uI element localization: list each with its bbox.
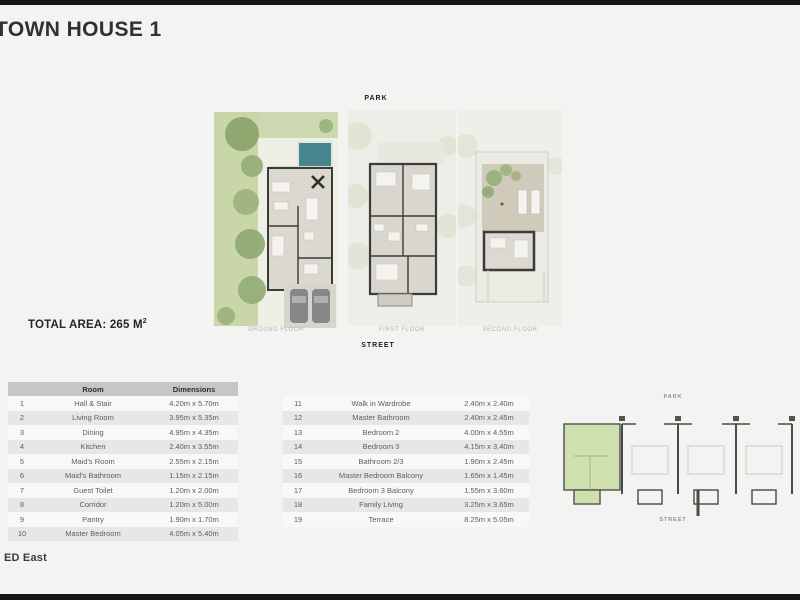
row-dim: 1.20m x 2.00m bbox=[150, 483, 238, 498]
row-dim: 1.20m x 5.00m bbox=[150, 498, 238, 513]
row-room: Maid's Bathroom bbox=[36, 469, 150, 484]
row-room: Master Bedroom bbox=[36, 527, 150, 542]
row-room: Bedroom 2 bbox=[313, 425, 449, 440]
row-num: 9 bbox=[8, 512, 36, 527]
table-row: 1Hall & Stair4.20m x 5.70m bbox=[8, 396, 238, 411]
row-num: 13 bbox=[283, 425, 313, 440]
row-dim: 2.40m x 3.55m bbox=[150, 440, 238, 455]
row-dim: 8.25m x 5.05m bbox=[449, 512, 529, 527]
row-room: Maid's Room bbox=[36, 454, 150, 469]
floor-plan-second: SECOND FLOOR bbox=[458, 106, 562, 338]
row-num: 16 bbox=[283, 469, 313, 484]
row-room: Bedroom 3 bbox=[313, 440, 449, 455]
table-row: 8Corridor1.20m x 5.00m bbox=[8, 498, 238, 513]
row-dim: 1.90m x 1.70m bbox=[150, 512, 238, 527]
floor-plan-caption: FIRST FLOOR bbox=[348, 327, 456, 333]
table-row: 14Bedroom 34.15m x 3.40m bbox=[283, 440, 529, 455]
row-dim: 2.55m x 2.15m bbox=[150, 454, 238, 469]
table-row: 19Terrace8.25m x 5.05m bbox=[283, 512, 529, 527]
second-floor-plan-drawing bbox=[458, 106, 562, 332]
row-num: 7 bbox=[8, 483, 36, 498]
total-area-superscript: 2 bbox=[143, 318, 147, 325]
row-num: 10 bbox=[8, 527, 36, 542]
row-dim: 3.25m x 3.65m bbox=[449, 498, 529, 513]
table-row: 7Guest Toilet1.20m x 2.00m bbox=[8, 483, 238, 498]
top-border-bar bbox=[0, 0, 800, 5]
floor-plan-ground: GROUND FLOOR bbox=[212, 106, 340, 338]
row-dim: 3.95m x 5.35m bbox=[150, 411, 238, 426]
row-num: 3 bbox=[8, 425, 36, 440]
total-area-label: TOTAL AREA: 265 M2 bbox=[28, 318, 147, 331]
row-dim: 1.65m x 1.45m bbox=[449, 469, 529, 484]
bottom-border-bar bbox=[0, 594, 800, 600]
room-table-left: Room Dimensions 1Hall & Stair4.20m x 5.7… bbox=[8, 382, 238, 541]
row-dim: 4.00m x 4.55m bbox=[449, 425, 529, 440]
table-row: 9Pantry1.90m x 1.70m bbox=[8, 512, 238, 527]
header-num bbox=[8, 382, 36, 396]
row-room: Dining bbox=[36, 425, 150, 440]
row-room: Hall & Stair bbox=[36, 396, 150, 411]
row-room: Bathroom 2/3 bbox=[313, 454, 449, 469]
table-row: 13Bedroom 24.00m x 4.55m bbox=[283, 425, 529, 440]
floor-plan-caption: GROUND FLOOR bbox=[212, 327, 340, 333]
footer-text: ED East bbox=[4, 552, 47, 564]
site-plan: PARK bbox=[560, 386, 800, 540]
page-title: TOWN HOUSE 1 bbox=[0, 18, 162, 42]
neighbour-units bbox=[622, 424, 792, 516]
table-row: 15Bathroom 2/31.90m x 2.45m bbox=[283, 454, 529, 469]
row-room: Walk in Wardrobe bbox=[313, 396, 449, 411]
first-floor-plan-drawing bbox=[348, 106, 456, 332]
row-num: 1 bbox=[8, 396, 36, 411]
plans-street-label: STREET bbox=[340, 342, 416, 349]
header-dimensions: Dimensions bbox=[150, 382, 238, 396]
site-plan-street-label: STREET bbox=[560, 517, 786, 523]
table-row: 2Living Room3.95m x 5.35m bbox=[8, 411, 238, 426]
row-room: Living Room bbox=[36, 411, 150, 426]
row-num: 12 bbox=[283, 411, 313, 426]
table-header-row: Room Dimensions bbox=[8, 382, 238, 396]
table-row: 11Walk in Wardrobe2.40m x 2.40m bbox=[283, 396, 529, 411]
row-dim: 4.15m x 3.40m bbox=[449, 440, 529, 455]
row-num: 17 bbox=[283, 483, 313, 498]
row-room: Bedroom 3 Balcony bbox=[313, 483, 449, 498]
table-row: 10Master Bedroom4.05m x 5.40m bbox=[8, 527, 238, 542]
floor-plan-first: FIRST FLOOR bbox=[348, 106, 456, 338]
table-row: 17Bedroom 3 Balcony1.55m x 3.60m bbox=[283, 483, 529, 498]
table-row: 18Family Living3.25m x 3.65m bbox=[283, 498, 529, 513]
row-num: 2 bbox=[8, 411, 36, 426]
row-dim: 1.55m x 3.60m bbox=[449, 483, 529, 498]
row-dim: 4.05m x 5.40m bbox=[150, 527, 238, 542]
row-num: 8 bbox=[8, 498, 36, 513]
table-row: 6Maid's Bathroom1.15m x 2.15m bbox=[8, 469, 238, 484]
row-room: Corridor bbox=[36, 498, 150, 513]
table-row: 16Master Bedroom Balcony1.65m x 1.45m bbox=[283, 469, 529, 484]
row-room: Master Bathroom bbox=[313, 411, 449, 426]
row-dim: 1.90m x 2.45m bbox=[449, 454, 529, 469]
header-room: Room bbox=[36, 382, 150, 396]
row-dim: 2.40m x 2.45m bbox=[449, 411, 529, 426]
row-dim: 2.40m x 2.40m bbox=[449, 396, 529, 411]
row-num: 18 bbox=[283, 498, 313, 513]
row-num: 4 bbox=[8, 440, 36, 455]
row-num: 6 bbox=[8, 469, 36, 484]
row-num: 11 bbox=[283, 396, 313, 411]
total-area-text: TOTAL AREA: 265 M bbox=[28, 319, 143, 331]
table-row: 12Master Bathroom2.40m x 2.45m bbox=[283, 411, 529, 426]
row-dim: 4.95m x 4.35m bbox=[150, 425, 238, 440]
ground-floor-plan-drawing bbox=[212, 106, 340, 332]
room-table-right: 11Walk in Wardrobe2.40m x 2.40m 12Master… bbox=[283, 396, 529, 527]
row-room: Terrace bbox=[313, 512, 449, 527]
table-row: 3Dining4.95m x 4.35m bbox=[8, 425, 238, 440]
row-dim: 1.15m x 2.15m bbox=[150, 469, 238, 484]
row-room: Guest Toilet bbox=[36, 483, 150, 498]
row-num: 5 bbox=[8, 454, 36, 469]
row-num: 19 bbox=[283, 512, 313, 527]
plans-park-label: PARK bbox=[340, 95, 412, 102]
highlighted-unit bbox=[564, 424, 620, 504]
row-dim: 4.20m x 5.70m bbox=[150, 396, 238, 411]
table-row: 4Kitchen2.40m x 3.55m bbox=[8, 440, 238, 455]
page: TOWN HOUSE 1 PARK bbox=[0, 0, 800, 600]
row-room: Master Bedroom Balcony bbox=[313, 469, 449, 484]
floor-plan-caption: SECOND FLOOR bbox=[458, 327, 562, 333]
table-row: 5Maid's Room2.55m x 2.15m bbox=[8, 454, 238, 469]
row-num: 14 bbox=[283, 440, 313, 455]
row-room: Kitchen bbox=[36, 440, 150, 455]
row-num: 15 bbox=[283, 454, 313, 469]
row-room: Pantry bbox=[36, 512, 150, 527]
row-room: Family Living bbox=[313, 498, 449, 513]
